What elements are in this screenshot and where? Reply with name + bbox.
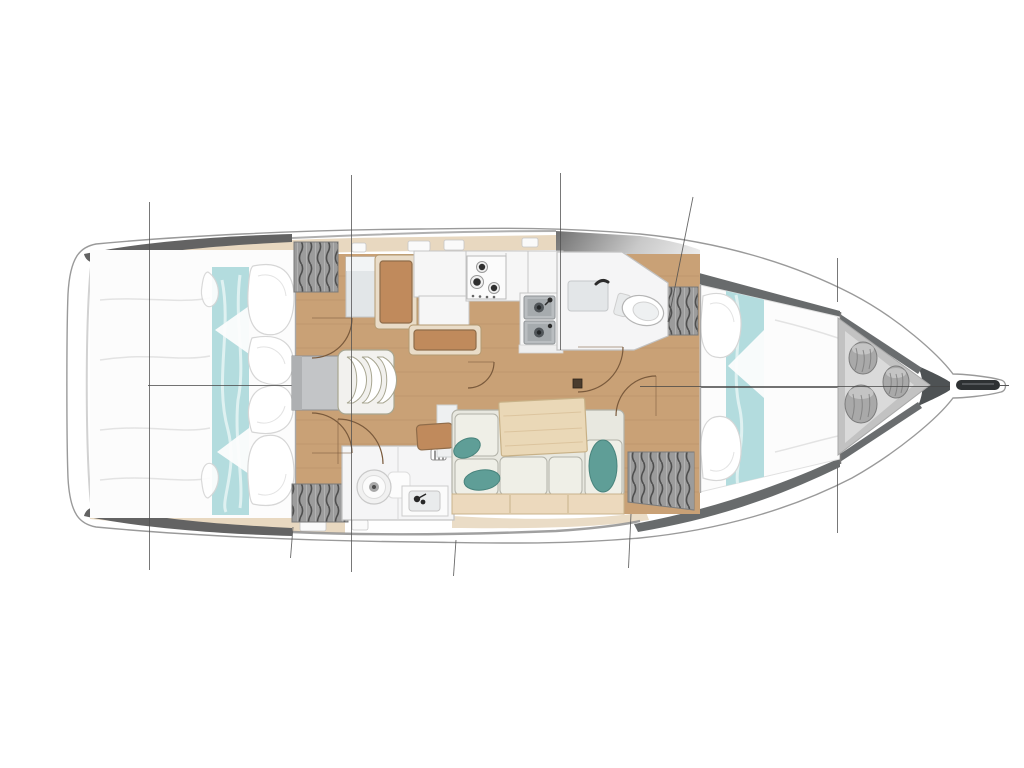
yacht-layout-page: [0, 0, 1024, 768]
sofa-front-bench: [452, 494, 624, 514]
wardrobe-hatch: [664, 287, 698, 335]
wardrobe-hatch: [292, 484, 348, 522]
bench-cushion: [414, 330, 476, 350]
washbasin-icon: [402, 486, 448, 516]
storage-bag: [883, 366, 909, 398]
sofa-cushion: [549, 457, 582, 495]
sink-icon: [524, 296, 555, 319]
storage-bag: [845, 385, 877, 423]
aft-cabins: [90, 250, 296, 518]
wardrobe-hatch: [294, 242, 338, 292]
forward-cabin: [700, 280, 841, 496]
mast-foot: [573, 379, 582, 388]
sofa-cushion: [500, 457, 547, 495]
deck-hatch-icon: [444, 240, 464, 250]
saloon-table: [499, 398, 588, 456]
teal-cushion: [589, 440, 617, 492]
deck-hatch-icon: [352, 243, 366, 252]
loose-cushion: [416, 423, 454, 450]
wet-locker-top: [346, 257, 378, 271]
pillow-mirror: [701, 416, 741, 480]
yacht-layout-diagram: [0, 0, 1024, 768]
engine-box-shade: [292, 356, 302, 410]
station-line: [454, 540, 457, 576]
chart-table: [414, 251, 468, 297]
wardrobe-hatch: [628, 452, 694, 510]
nav-seat-cushion: [380, 261, 412, 323]
deck-hatch-icon: [408, 241, 430, 251]
storage-bag: [849, 342, 877, 374]
companionway: [292, 350, 397, 414]
deck-hatch-icon: [522, 238, 538, 247]
anchor-roller-icon: [956, 380, 1000, 390]
pillow: [701, 294, 741, 358]
sink-icon: [524, 321, 555, 344]
shower-tray: [568, 281, 608, 311]
deck-hatch-icon: [352, 520, 368, 530]
